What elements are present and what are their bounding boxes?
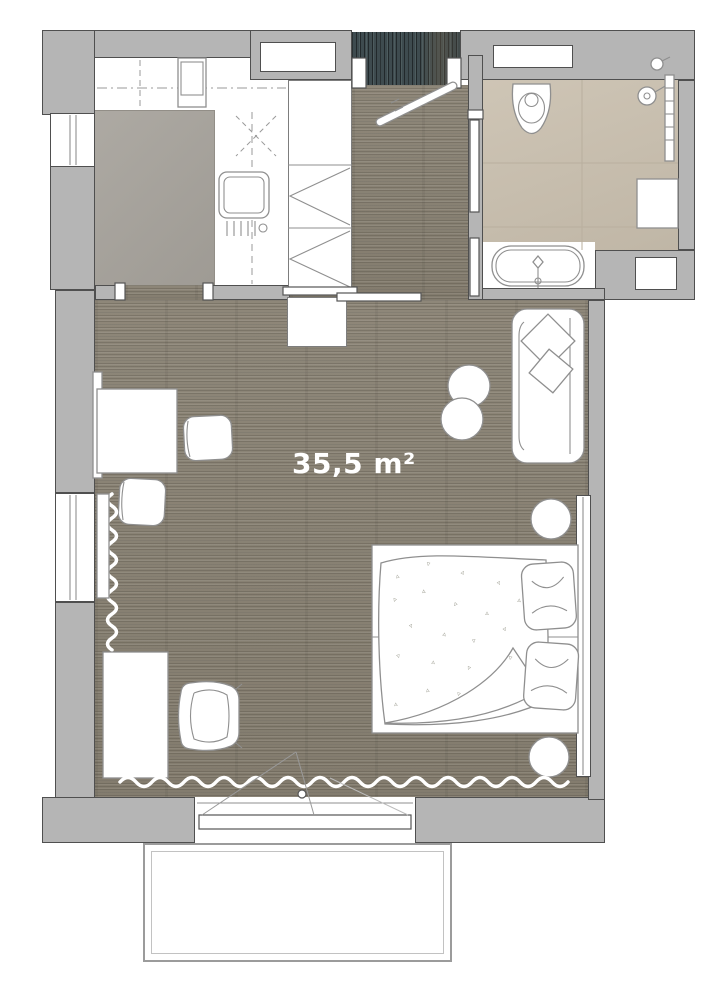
living-room-floor (95, 300, 588, 797)
wall (55, 602, 95, 799)
wall (42, 30, 95, 115)
entry-mat-floor (352, 32, 461, 85)
wardrobe (288, 80, 352, 290)
left-window (55, 493, 95, 602)
hall-cabinet (287, 297, 347, 347)
bathroom-partition-wall (468, 55, 483, 300)
bathroom-window (493, 45, 573, 68)
wall-niche (260, 42, 336, 72)
bathroom-floor (483, 80, 678, 250)
bedroom-window (576, 495, 591, 777)
balcony-door-threshold (195, 797, 415, 843)
wall (55, 290, 95, 493)
kitchen-floor (95, 110, 215, 290)
wall (480, 288, 605, 300)
area-label: 35,5 m² (292, 447, 416, 480)
wall-stub (95, 285, 125, 300)
bathtub-niche (483, 242, 595, 290)
kitchen-opening-floor (125, 285, 203, 300)
kitchen-window (50, 113, 95, 167)
floor-plan: ▵▿▵▿▵▿▵▿▵▿▵▿▵▿▵▿▵▿▵▿ (0, 0, 727, 1000)
wall (678, 80, 695, 250)
wall-recess (635, 257, 677, 290)
balcony (143, 843, 452, 962)
wall (42, 797, 195, 843)
balcony-inner-edge (151, 851, 444, 954)
wall (50, 165, 95, 290)
hall-floor (352, 85, 468, 300)
wall-stub (203, 285, 290, 300)
wall (415, 797, 605, 843)
